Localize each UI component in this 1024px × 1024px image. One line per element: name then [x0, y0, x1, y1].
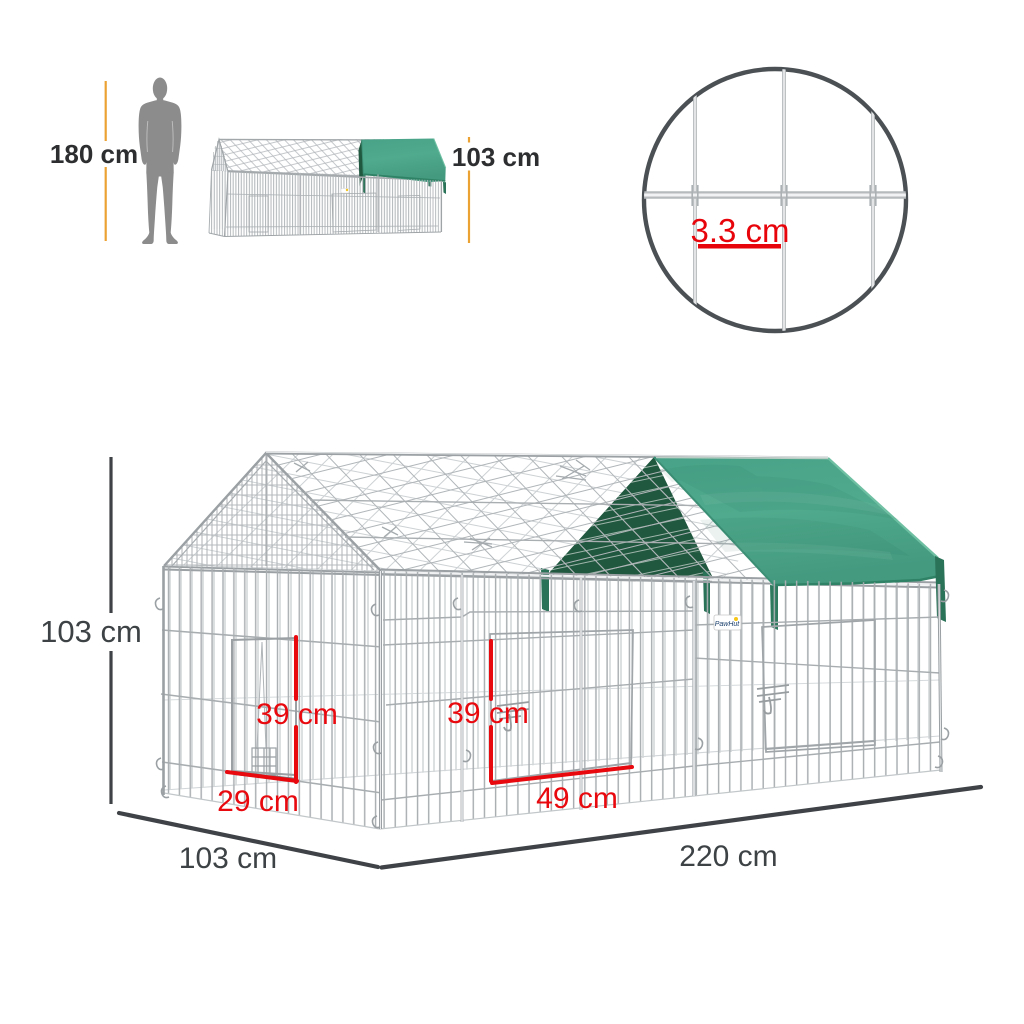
- svg-text:PawHut: PawHut: [715, 621, 741, 628]
- svg-text:49 cm: 49 cm: [536, 782, 618, 815]
- svg-text:103 cm: 103 cm: [179, 842, 277, 875]
- svg-text:29 cm: 29 cm: [217, 785, 299, 818]
- svg-text:220 cm: 220 cm: [679, 840, 777, 873]
- svg-text:39 cm: 39 cm: [447, 697, 529, 730]
- svg-text:180 cm: 180 cm: [50, 139, 138, 169]
- svg-text:3.3 cm: 3.3 cm: [690, 212, 789, 249]
- svg-text:39 cm: 39 cm: [256, 698, 338, 731]
- svg-text:103 cm: 103 cm: [40, 614, 142, 649]
- svg-text:103 cm: 103 cm: [452, 142, 540, 172]
